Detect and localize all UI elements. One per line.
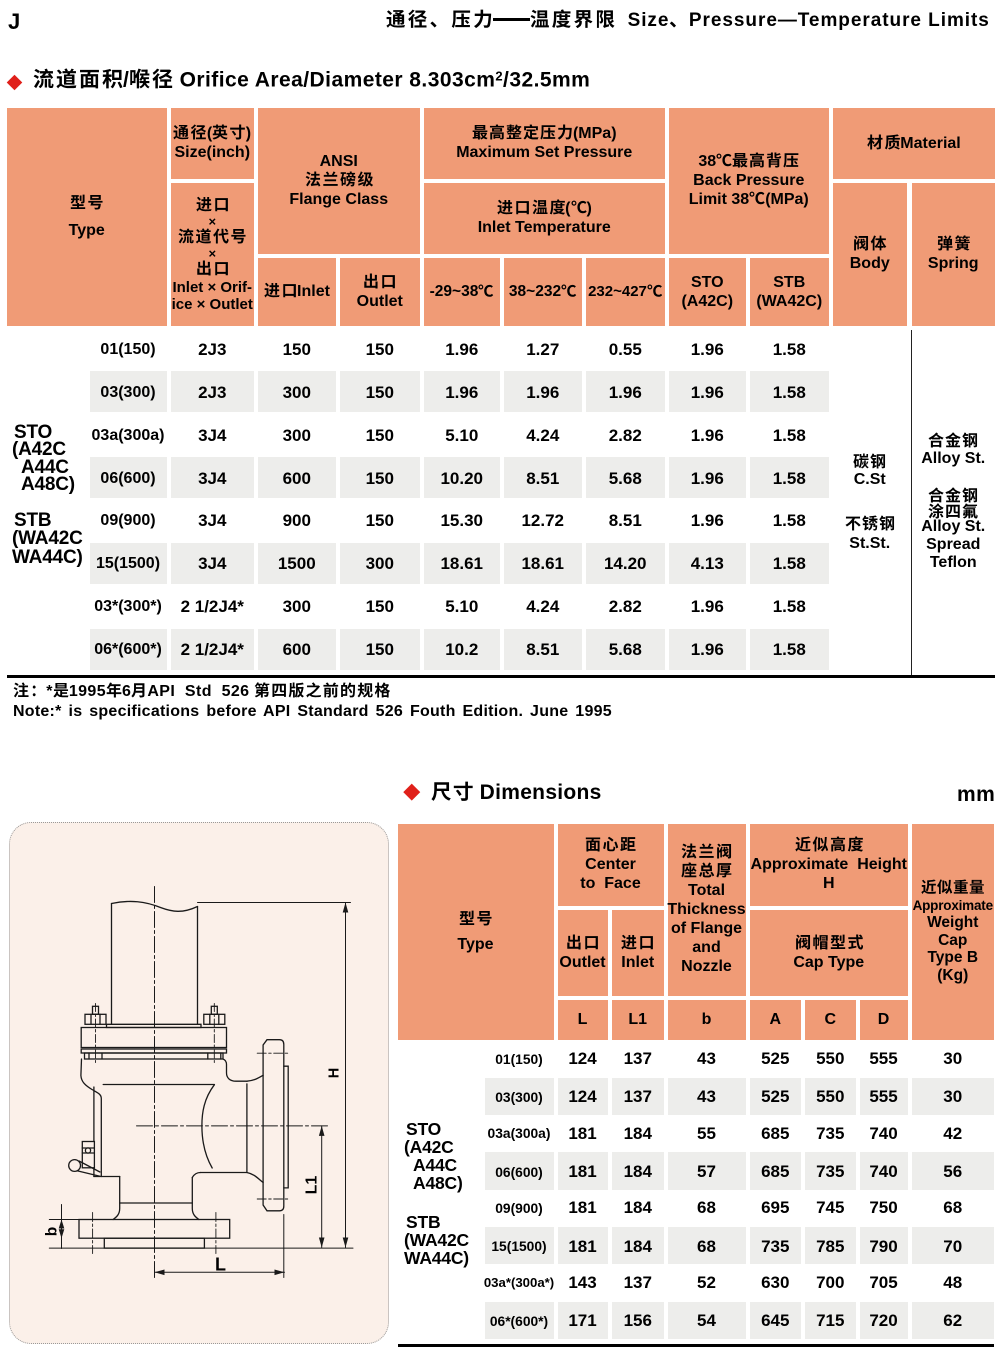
svg-text:L: L <box>215 1254 226 1274</box>
svg-text:H: H <box>326 1067 342 1077</box>
svg-text:L1: L1 <box>303 1175 320 1194</box>
svg-text:b: b <box>43 1226 60 1235</box>
